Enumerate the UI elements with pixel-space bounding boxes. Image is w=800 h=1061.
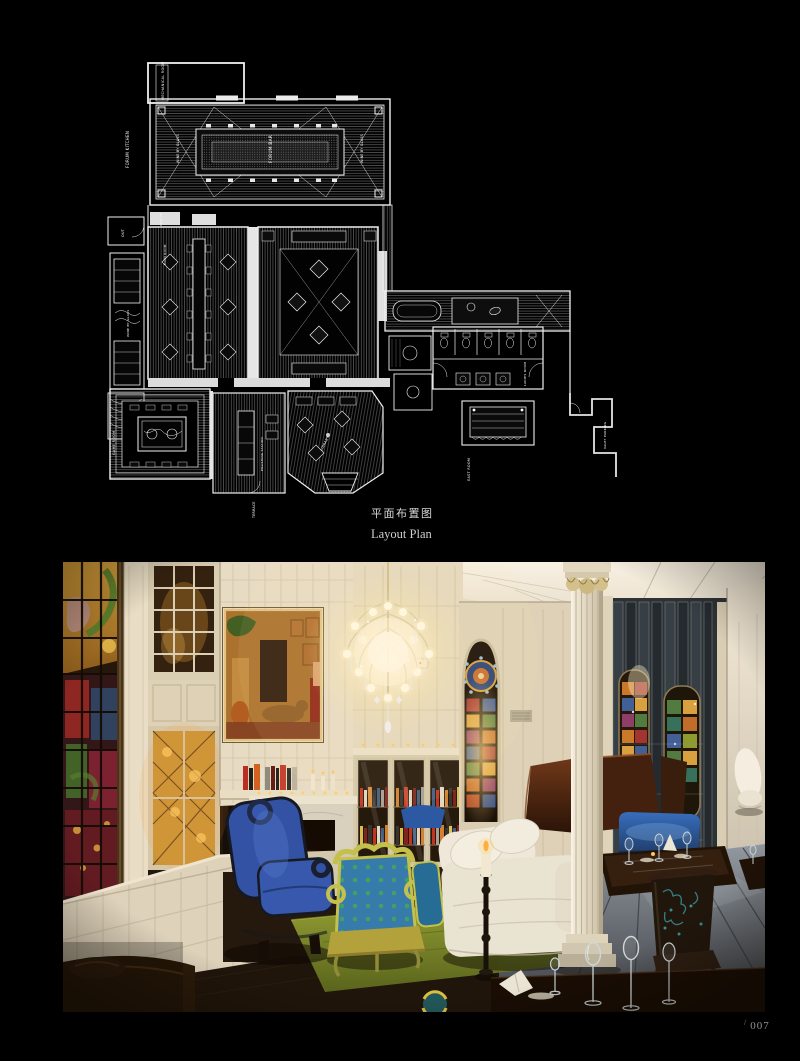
- book-page: MECHANICAL ROOM FORUM: [0, 0, 800, 1061]
- plan-label-pick-up: PICK UP: [159, 213, 163, 226]
- interior-photo: [63, 562, 765, 1012]
- plan-room-stage: [462, 401, 534, 445]
- plan-room-game: GAME ROOM: [110, 389, 210, 479]
- plan-label-main-room: MAIN ROOM: [163, 244, 167, 265]
- plan-label-wine-right: WINE BY GLASS: [360, 134, 364, 163]
- plan-label-out: OUT: [121, 228, 125, 237]
- plan-room-forum-bar: FORUM BAR WINE BY GLASS WINE BY GLASS: [150, 96, 390, 206]
- caption-english: Layout Plan: [371, 526, 434, 542]
- plan-room-library: LIBRARY: [288, 391, 383, 493]
- plan-label-forum-kitchen: FORUM KITCHEN: [125, 131, 130, 168]
- plan-label-terrace: TERRACE: [252, 501, 256, 519]
- plan-label-mechanical-room: MECHANICAL ROOM: [161, 61, 165, 100]
- plan-label-wine-left: WINE BY GLASS: [176, 134, 180, 163]
- folio-slash: /: [744, 1018, 747, 1027]
- plan-label-valet: VALET PARKING: [603, 421, 607, 449]
- plan-room-polishing: POLISHING STATION: [213, 393, 285, 493]
- page-number: /007: [744, 1020, 770, 1032]
- plan-corridor: [383, 205, 392, 291]
- plan-room-main-dining-b: [258, 227, 387, 379]
- plan-label-ladies-room: LADIES ROOM: [523, 361, 527, 386]
- plan-label-game-room: GAME ROOM: [112, 431, 116, 455]
- plan-label-wine-storage: WINE BY GLASS: [126, 310, 130, 337]
- plan-room-restrooms: LADIES ROOM: [433, 327, 543, 389]
- folio-number: 007: [750, 1020, 770, 1032]
- plan-pool-table: [138, 417, 186, 451]
- plan-label-forum-bar: FORUM BAR: [268, 135, 273, 163]
- plan-caption: 平面布置图 Layout Plan: [371, 507, 434, 542]
- floor-plan: MECHANICAL ROOM FORUM: [100, 55, 620, 525]
- plan-label-polishing: POLISHING STATION: [260, 437, 264, 471]
- plan-label-east-room: EAST ROOM: [467, 458, 471, 481]
- plan-small-rooms: [389, 336, 432, 410]
- plan-valet-corridor: VALET PARKING: [570, 393, 616, 477]
- caption-chinese: 平面布置图: [371, 507, 434, 521]
- plan-room-main-dining-a: MAIN ROOM PICK UP: [148, 212, 258, 379]
- floor-plan-drawing: MECHANICAL ROOM FORUM: [108, 61, 616, 519]
